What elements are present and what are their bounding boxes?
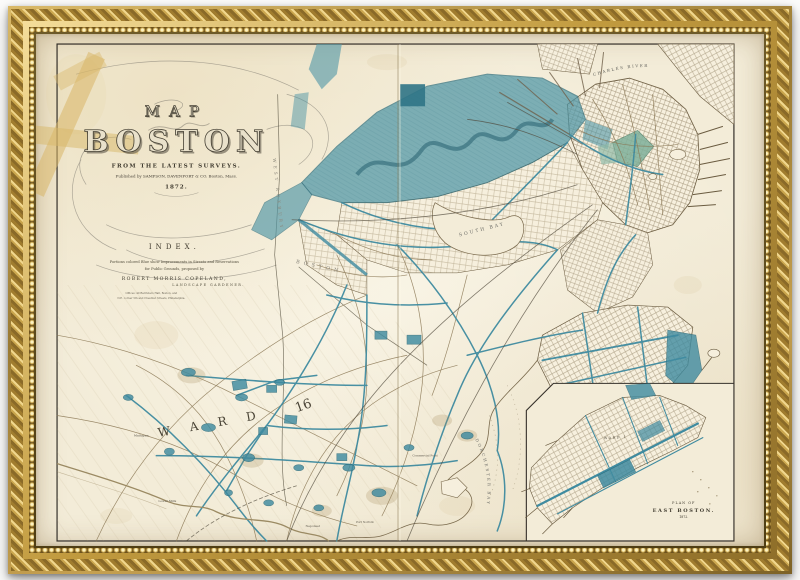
framed-antique-map: MAP MAP BOSTON BOSTON FROM THE LATEST SU… (0, 0, 800, 580)
frame-inner-lip: MAP MAP BOSTON BOSTON FROM THE LATEST SU… (34, 32, 766, 548)
label-lower-mills: Lower Mills (158, 499, 176, 503)
index-office2: N.E. corner 5th and Chestnut Streets, Ph… (117, 296, 185, 300)
inset-east-boston: EAST BOSTON. (653, 508, 715, 514)
title-flourishes (72, 61, 328, 279)
map-paper: MAP MAP BOSTON BOSTON FROM THE LATEST SU… (36, 34, 764, 546)
title-city: BOSTON (83, 124, 269, 159)
index-author: ROBERT MORRIS COPELAND, (122, 276, 227, 282)
boston-map-graphic: MAP MAP BOSTON BOSTON FROM THE LATEST SU… (36, 34, 764, 546)
picture-frame: MAP MAP BOSTON BOSTON FROM THE LATEST SU… (8, 6, 792, 574)
label-mattapan: Mattapan (134, 434, 149, 438)
label-neponset: Neponset (305, 524, 320, 528)
index-line1: Portions colored Blue show Improvements … (110, 260, 239, 264)
inset-plan-of: PLAN OF (672, 501, 695, 505)
title-year: 1872. (165, 185, 188, 191)
label-port-norfolk: Port Norfolk (356, 520, 374, 524)
title-map-word: MAP (145, 102, 208, 120)
title-imprint: Published by SAMPSON, DAVENPORT & CO. Bo… (116, 174, 237, 179)
frame-carved-band: MAP MAP BOSTON BOSTON FROM THE LATEST SU… (11, 9, 789, 571)
label-dorchester-bay: DORCHESTER BAY (474, 438, 491, 506)
index-office1: Offices: 40 Barristers Hall, Boston, and (125, 291, 177, 295)
east-boston-inset (521, 383, 734, 541)
index-author-title: LANDSCAPE GARDENER. (172, 283, 244, 287)
index-line2: for Public Grounds, proposed by (145, 267, 205, 271)
label-dorchester-bay-text: DORCHESTER BAY (474, 438, 491, 506)
index-heading: INDEX. (149, 242, 200, 251)
title-subtitle: FROM THE LATEST SURVEYS. (112, 164, 242, 170)
frame-gold-slope: MAP MAP BOSTON BOSTON FROM THE LATEST SU… (23, 21, 777, 559)
inset-year: 1872. (679, 515, 688, 519)
label-commercial-point: Commercial Point (412, 454, 438, 458)
frame-bead-band: MAP MAP BOSTON BOSTON FROM THE LATEST SU… (29, 27, 771, 553)
